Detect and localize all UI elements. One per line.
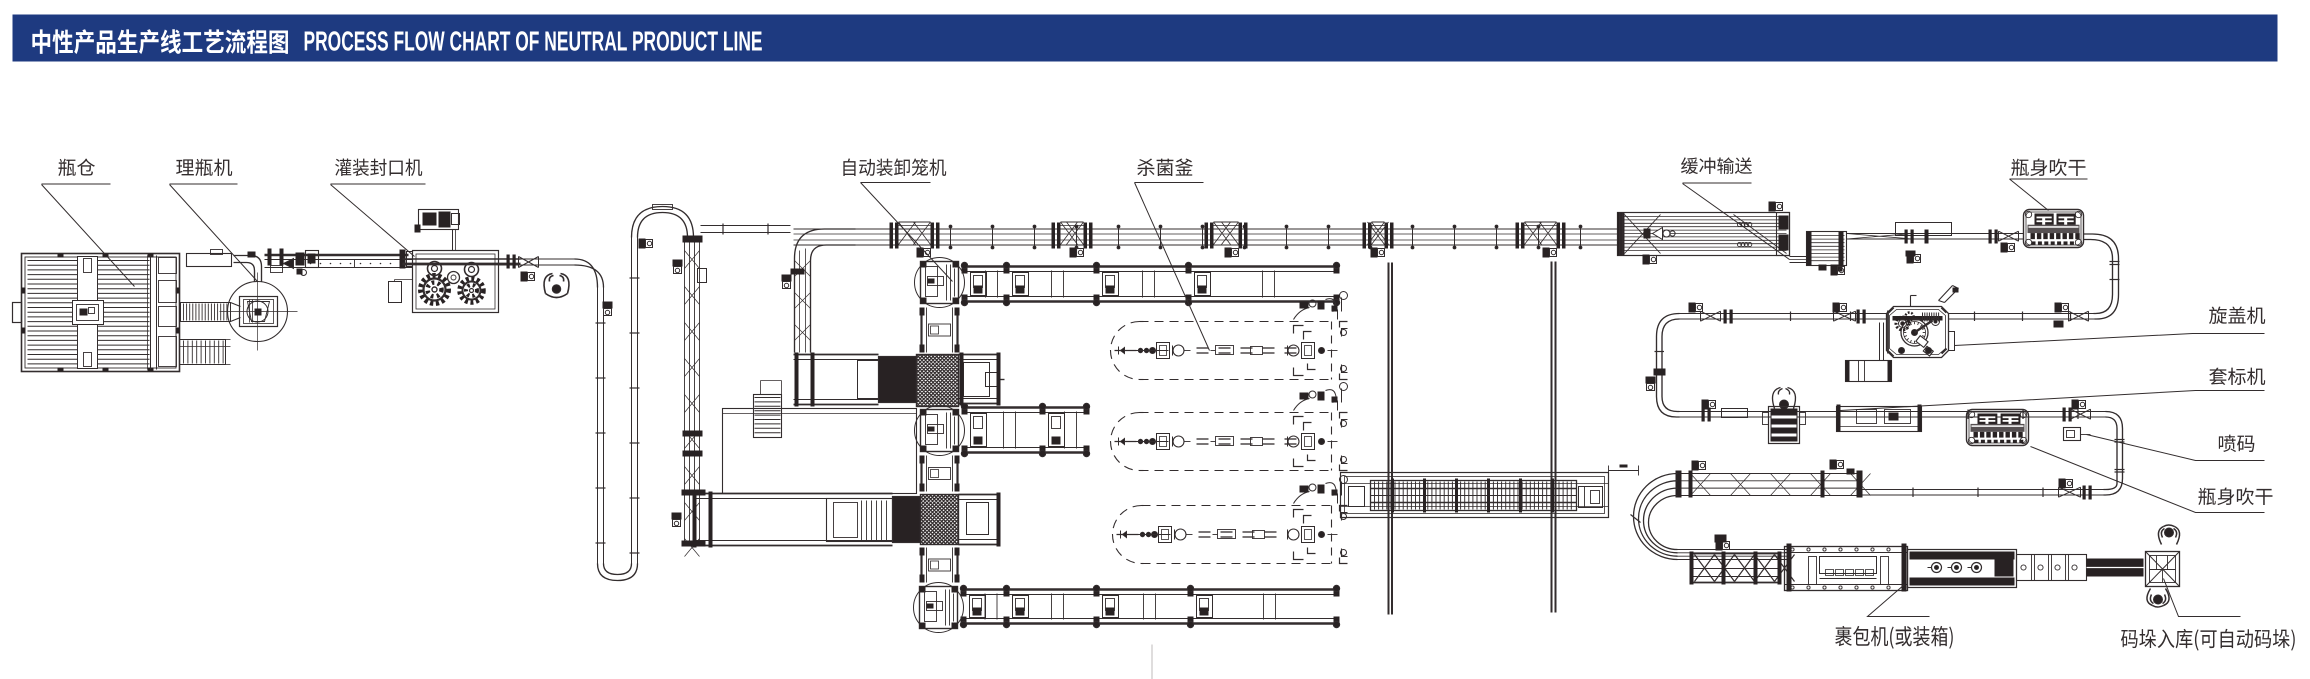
svg-text:PROCESS FLOW CHART OF NEUTRAL: PROCESS FLOW CHART OF NEUTRAL PRODUCT LI… — [304, 26, 763, 57]
